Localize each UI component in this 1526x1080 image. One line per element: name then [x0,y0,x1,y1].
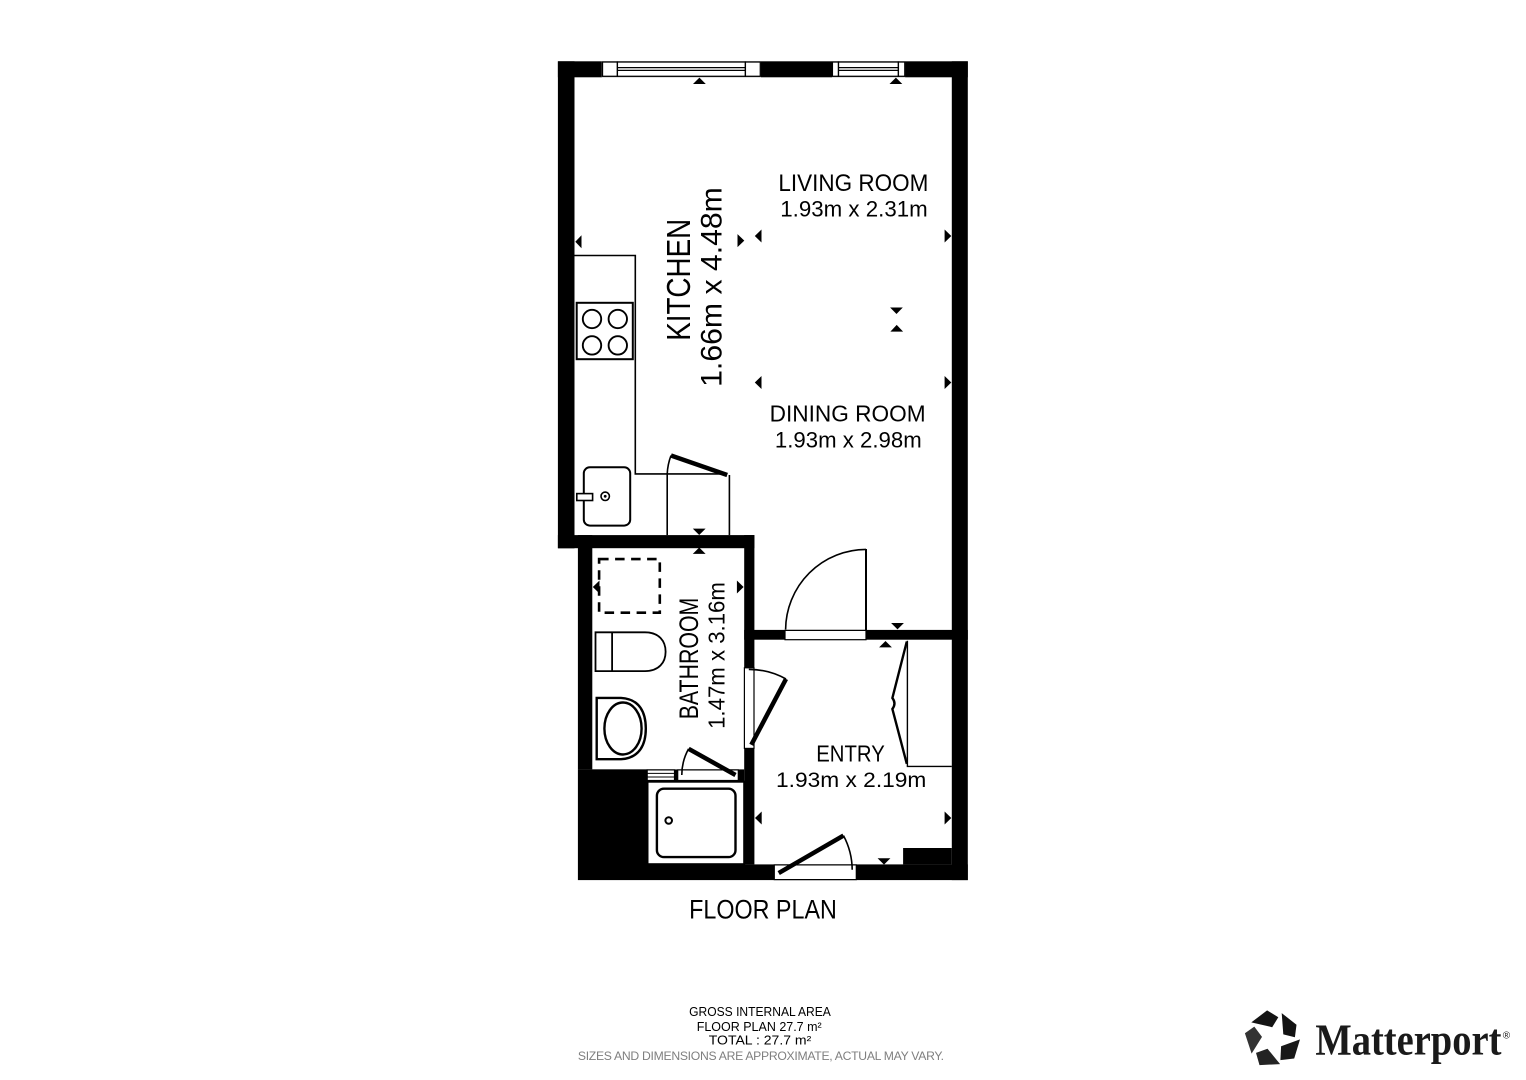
svg-text:1.93m x 2.19m: 1.93m x 2.19m [776,768,926,792]
svg-text:®: ® [1503,1031,1511,1042]
svg-text:LIVING ROOM: LIVING ROOM [778,170,928,197]
svg-text:DINING ROOM: DINING ROOM [770,401,926,427]
svg-text:FLOOR PLAN: FLOOR PLAN [689,895,837,925]
svg-text:FLOOR PLAN 27.7 m²: FLOOR PLAN 27.7 m² [697,1020,822,1034]
svg-text:1.93m x 2.31m: 1.93m x 2.31m [780,196,928,221]
svg-text:ENTRY: ENTRY [816,741,885,767]
svg-text:Matterport: Matterport [1315,1015,1501,1064]
svg-text:BATHROOM: BATHROOM [673,598,704,720]
svg-text:TOTAL : 27.7 m²: TOTAL : 27.7 m² [709,1033,812,1047]
svg-text:1.47m x 3.16m: 1.47m x 3.16m [704,582,730,729]
svg-text:1.93m x 2.98m: 1.93m x 2.98m [775,428,922,453]
svg-text:SIZES AND DIMENSIONS ARE APPRO: SIZES AND DIMENSIONS ARE APPROXIMATE, AC… [578,1049,944,1063]
svg-text:KITCHEN: KITCHEN [661,219,698,341]
svg-text:GROSS INTERNAL AREA: GROSS INTERNAL AREA [689,1005,831,1019]
svg-text:1.66m x 4.48m: 1.66m x 4.48m [696,187,729,387]
